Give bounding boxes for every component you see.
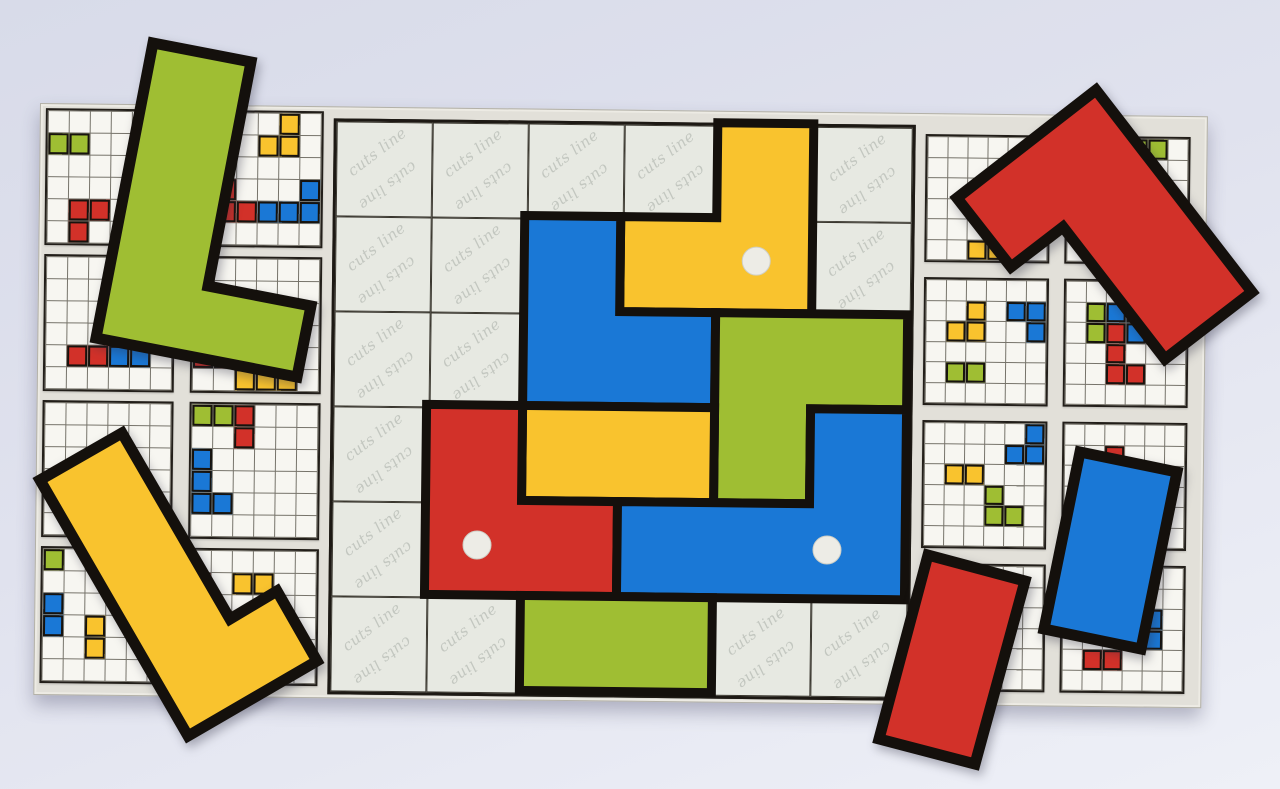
red-domino-piece-loose[interactable] <box>879 555 1025 764</box>
red-l-piece-loose[interactable] <box>957 90 1252 359</box>
blue-domino-piece-loose[interactable] <box>1044 452 1177 649</box>
green-l-piece-loose[interactable] <box>96 43 311 377</box>
photo-backdrop: cuts linecuts linecuts linecuts linecuts… <box>0 0 1280 789</box>
yellow-l-piece-loose[interactable] <box>40 433 317 736</box>
loose-pieces-layer <box>0 0 1280 789</box>
